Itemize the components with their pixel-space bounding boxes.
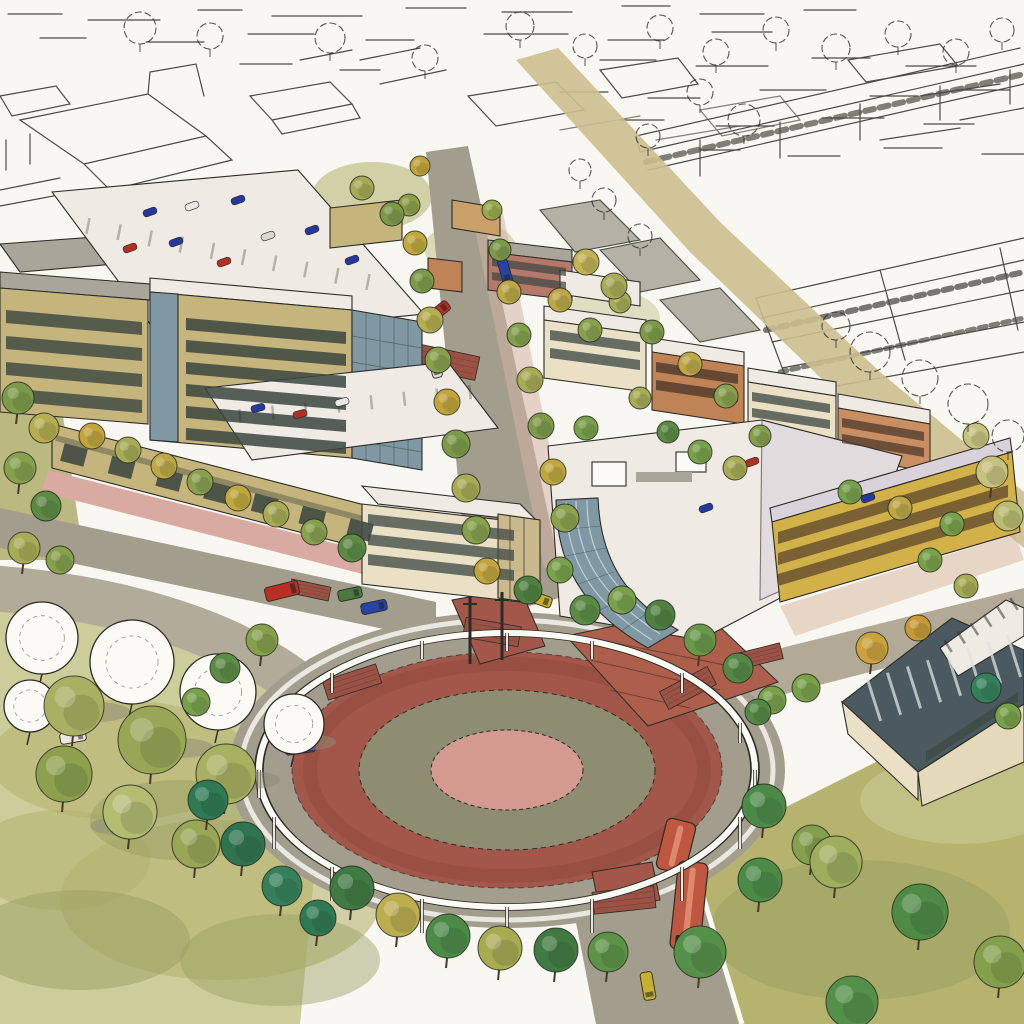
tree-canopy-light: [633, 391, 641, 399]
tree-canopy-light: [718, 388, 726, 396]
roof-strip: [636, 472, 692, 482]
tree-canopy-light: [650, 605, 661, 616]
tree-canopy-light: [457, 479, 467, 489]
tree-canopy-light: [578, 254, 587, 263]
street-tree: [749, 425, 771, 447]
tree-canopy-light: [556, 509, 566, 519]
tree-canopy-light: [750, 704, 759, 713]
tree-canopy-light: [14, 538, 25, 549]
tree-canopy-light: [799, 832, 813, 846]
center-island: [431, 730, 583, 810]
tree-canopy-light: [545, 464, 554, 473]
tree-canopy-light: [402, 198, 410, 206]
tree-canopy-light: [338, 874, 353, 889]
street-tree: [629, 387, 651, 409]
tree-canopy-light: [207, 755, 228, 776]
tree-canopy-light: [982, 462, 993, 473]
tree-canopy-outline: [264, 694, 324, 754]
street-tree: [993, 501, 1023, 531]
tree-canopy-light: [354, 180, 362, 188]
tree-canopy-light: [215, 658, 226, 669]
street-tree: [442, 430, 470, 458]
tree-canopy-light: [542, 936, 557, 951]
street-tree: [963, 423, 989, 449]
street-tree: [410, 156, 430, 176]
street-tree: [792, 674, 820, 702]
tree-canopy-light: [750, 792, 765, 807]
tree-canopy-light: [728, 658, 739, 669]
tree-canopy-light: [343, 539, 353, 549]
street-tree: [640, 320, 664, 344]
tree-canopy-light: [384, 206, 392, 214]
tree-canopy-light: [130, 718, 154, 742]
tree-canopy-light: [661, 425, 669, 433]
tree-canopy-light: [156, 458, 165, 467]
street-tree: [151, 453, 177, 479]
street-tree: [462, 516, 490, 544]
tree-canopy-light: [552, 562, 561, 571]
street-tree: [474, 558, 500, 584]
tree-canopy-light: [644, 324, 652, 332]
street-tree: [528, 413, 554, 439]
tree-canopy-light: [819, 845, 837, 863]
tree-canopy-light: [120, 442, 129, 451]
street-tree: [187, 469, 213, 495]
tree-canopy-light: [902, 894, 922, 914]
tree-canopy-light: [493, 243, 501, 251]
street-tree: [954, 574, 978, 598]
street-tree: [115, 437, 141, 463]
street-tree: [645, 600, 675, 630]
tree-canopy-light: [467, 521, 477, 531]
tree-canopy-light: [753, 429, 761, 437]
tree-canopy-light: [690, 630, 701, 641]
street-tree: [551, 504, 579, 532]
tree-canopy-light: [763, 691, 773, 701]
tree-canopy-light: [180, 828, 197, 845]
street-tree: [540, 459, 566, 485]
tree-canopy-light: [501, 284, 509, 292]
tree-canopy-light: [268, 506, 277, 515]
street-tree: [380, 202, 404, 226]
tree-canopy-light: [34, 418, 45, 429]
street-tree: [826, 976, 878, 1024]
street-tree: [410, 269, 434, 293]
tree-canopy-light: [192, 474, 201, 483]
tree-canopy-light: [1000, 708, 1009, 717]
street-tree: [995, 703, 1021, 729]
tree-canopy-light: [8, 388, 19, 399]
street-tree: [940, 512, 964, 536]
tree-canopy-light: [230, 490, 239, 499]
street-tree: [210, 653, 240, 683]
tree-canopy-light: [575, 600, 586, 611]
street-tree: [888, 496, 912, 520]
street-tree: [338, 534, 366, 562]
tree-canopy-light: [533, 418, 542, 427]
street-tree: [225, 485, 251, 511]
street-tree: [574, 416, 598, 440]
street-tree: [723, 653, 753, 683]
street-tree: [657, 421, 679, 443]
street-tree: [403, 231, 427, 255]
tree-canopy-light: [797, 679, 807, 689]
street-tree: [678, 352, 702, 376]
street-tree: [489, 239, 511, 261]
tree-canopy-light: [595, 939, 609, 953]
street-tree: [548, 288, 572, 312]
tree-canopy-light: [835, 985, 853, 1003]
street-tree: [434, 389, 460, 415]
tree-canopy-light: [306, 524, 315, 533]
street-tree: [79, 423, 105, 449]
street-tree: [905, 615, 931, 641]
tree-canopy-light: [46, 756, 66, 776]
street-tree: [745, 699, 771, 725]
tree-canopy-light: [195, 787, 209, 801]
tree-canopy-outline: [90, 620, 174, 704]
street-tree: [688, 440, 712, 464]
tree-canopy-light: [479, 563, 488, 572]
street-tree: [301, 519, 327, 545]
tree-canopy-light: [958, 578, 966, 586]
tree-canopy-light: [922, 552, 930, 560]
tree-canopy-light: [606, 278, 615, 287]
street-tree: [601, 273, 627, 299]
tree-canopy-light: [842, 484, 850, 492]
street-tree: [425, 347, 451, 373]
street-tree: [514, 576, 542, 604]
tree-canopy-light: [55, 687, 76, 708]
street-tree: [350, 176, 374, 200]
tree-canopy-light: [439, 394, 448, 403]
tree-canopy-light: [683, 935, 701, 953]
tree-canopy-light: [414, 273, 422, 281]
tree-canopy-light: [998, 506, 1009, 517]
tree-canopy-light: [968, 428, 977, 437]
street-tree: [918, 548, 942, 572]
street-tree: [482, 200, 502, 220]
roof-penthouse: [592, 462, 626, 486]
tree-canopy-light: [862, 638, 873, 649]
tree-canopy-light: [36, 496, 47, 507]
street-tree: [182, 688, 210, 716]
tree-canopy-light: [582, 322, 590, 330]
street-tree: [417, 307, 443, 333]
tree-canopy-light: [10, 458, 21, 469]
tree-canopy-light: [486, 934, 501, 949]
tree-canopy-light: [552, 292, 560, 300]
tree-canopy-light: [306, 906, 319, 919]
tree-canopy-light: [519, 581, 529, 591]
street-tree: [517, 367, 543, 393]
street-tree: [263, 501, 289, 527]
tree-canopy-light: [422, 312, 431, 321]
tree-canopy-light: [944, 516, 952, 524]
tree-canopy-light: [746, 866, 761, 881]
orange-accent-box: [428, 258, 462, 292]
tree-canopy-outline: [6, 602, 78, 674]
street-tree: [31, 491, 61, 521]
tree-canopy-light: [269, 873, 283, 887]
office-tower-glass-strip: [150, 292, 178, 442]
tree-canopy-light: [486, 204, 493, 211]
street-tree: [573, 249, 599, 275]
street-tree: [29, 413, 59, 443]
tree-canopy-light: [447, 435, 457, 445]
street-tree: [497, 280, 521, 304]
tree-canopy-light: [892, 500, 900, 508]
street-tree: [838, 480, 862, 504]
tree-canopy-light: [187, 693, 197, 703]
tree-canopy-light: [578, 420, 586, 428]
tree-canopy-light: [84, 428, 93, 437]
street-tree: [608, 586, 636, 614]
street-tree: [971, 673, 1001, 703]
street-tree: [714, 384, 738, 408]
tree-canopy-light: [112, 794, 131, 813]
tree-canopy-light: [434, 922, 449, 937]
tree-canopy-light: [229, 830, 244, 845]
street-tree: [723, 456, 747, 480]
street-tree: [507, 323, 531, 347]
street-tree: [452, 474, 480, 502]
tree-canopy-light: [252, 630, 263, 641]
tree-canopy-light: [682, 356, 690, 364]
rendering-svg: [0, 0, 1024, 1024]
lawn-blotch: [180, 914, 380, 1006]
tree-canopy-light: [522, 372, 531, 381]
tree-canopy-light: [910, 620, 919, 629]
tree-canopy-light: [430, 352, 439, 361]
tree-canopy-light: [511, 327, 519, 335]
street-tree: [570, 595, 600, 625]
tree-canopy-light: [692, 444, 700, 452]
street-tree: [578, 318, 602, 342]
tree-canopy-light: [414, 160, 421, 167]
tree-canopy-light: [727, 460, 735, 468]
tree-canopy-light: [384, 901, 399, 916]
tree-canopy-light: [976, 678, 987, 689]
tree-canopy-light: [407, 235, 415, 243]
watercolor-rendering: [0, 0, 1024, 1024]
tree-canopy-light: [51, 551, 61, 561]
street-tree: [46, 546, 74, 574]
tree-canopy-light: [983, 945, 1001, 963]
tree-canopy-light: [613, 591, 623, 601]
street-tree: [547, 557, 573, 583]
